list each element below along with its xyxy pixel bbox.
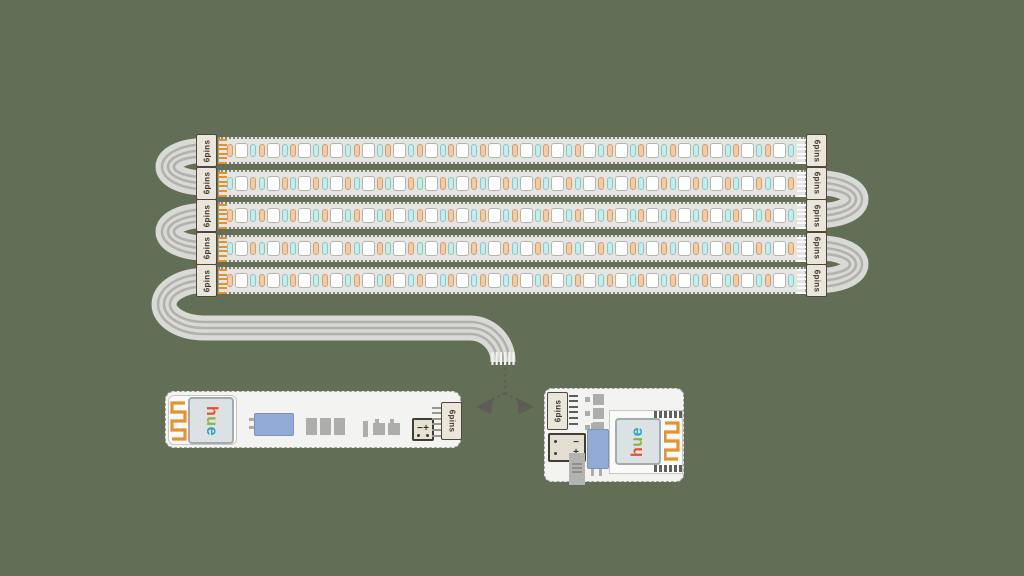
hue-controller-board-compact: 6pins − + hue	[544, 388, 684, 482]
led-white	[615, 273, 628, 288]
connector-pin	[797, 139, 806, 141]
connector-pin	[797, 278, 806, 280]
led-cool	[756, 144, 762, 157]
led-warm	[250, 177, 256, 190]
connector-pin	[218, 185, 227, 187]
connector-pin	[218, 218, 227, 220]
led-cool	[566, 209, 572, 222]
led-cool	[322, 177, 328, 190]
connector-pin	[797, 260, 806, 262]
led-group	[227, 208, 256, 223]
led-cool	[670, 242, 676, 255]
led-white	[235, 241, 248, 256]
led-warm	[259, 209, 265, 222]
led-strip-leds	[227, 269, 794, 292]
led-warm	[512, 209, 518, 222]
led-group	[512, 273, 541, 288]
led-white	[425, 241, 438, 256]
connector-label: 6pins	[202, 140, 211, 162]
led-cool	[448, 177, 454, 190]
led-cool	[756, 209, 762, 222]
led-group	[290, 273, 319, 288]
led-warm	[725, 177, 731, 190]
connector-pin	[797, 176, 806, 178]
connector-pin	[218, 144, 227, 146]
led-cool	[227, 177, 233, 190]
led-warm	[512, 144, 518, 157]
led-white	[583, 241, 596, 256]
led-white	[710, 241, 723, 256]
led-cool	[227, 242, 233, 255]
led-white	[741, 241, 754, 256]
connector-label: 6pins	[812, 172, 821, 194]
led-group	[765, 241, 794, 256]
led-cool	[788, 209, 794, 222]
board-6pins-connector: 6pins	[441, 402, 462, 440]
smd-component	[388, 423, 400, 435]
led-group	[290, 241, 319, 256]
led-white	[330, 143, 343, 158]
smd-component	[585, 397, 590, 402]
led-cool	[575, 242, 581, 255]
led-white	[362, 273, 375, 288]
led-white	[488, 176, 501, 191]
led-group	[227, 143, 256, 158]
connector-pin	[797, 269, 806, 271]
led-cool	[480, 177, 486, 190]
led-warm	[290, 209, 296, 222]
led-group	[259, 143, 288, 158]
connector-label: 6pins	[812, 270, 821, 292]
led-white	[520, 143, 533, 158]
antenna-icon	[169, 401, 187, 441]
led-warm	[702, 274, 708, 287]
led-group	[322, 241, 351, 256]
connector-pin	[797, 250, 806, 252]
led-cool	[408, 144, 414, 157]
led-cool	[250, 274, 256, 287]
led-cool	[607, 177, 613, 190]
led-white	[583, 208, 596, 223]
led-white	[773, 208, 786, 223]
led-white	[235, 176, 248, 191]
led-warm	[575, 209, 581, 222]
led-group	[322, 208, 351, 223]
connector-pin	[797, 246, 806, 248]
led-warm	[471, 177, 477, 190]
led-group	[638, 273, 667, 288]
led-group	[670, 208, 699, 223]
strip-6pins-connector-right-1: 6pins	[806, 134, 827, 167]
connector-pin	[218, 213, 227, 215]
led-warm	[575, 144, 581, 157]
led-cool	[661, 209, 667, 222]
led-group	[290, 143, 319, 158]
led-white	[456, 208, 469, 223]
connector-pin	[797, 162, 806, 164]
arrow-to-right-board	[517, 398, 534, 414]
led-white	[646, 143, 659, 158]
led-group	[765, 143, 794, 158]
led-warm	[693, 177, 699, 190]
connector-pin	[797, 190, 806, 192]
connector-label: 6pins	[202, 205, 211, 227]
led-cool	[765, 177, 771, 190]
led-cool	[480, 242, 486, 255]
led-warm	[503, 242, 509, 255]
led-white	[520, 176, 533, 191]
connector-pin	[218, 283, 227, 285]
led-cool	[313, 144, 319, 157]
led-cool	[693, 209, 699, 222]
connector-pin	[797, 204, 806, 206]
led-strip-row-2	[218, 170, 806, 197]
led-group	[607, 208, 636, 223]
led-white	[615, 208, 628, 223]
led-group	[448, 273, 477, 288]
led-white	[520, 241, 533, 256]
power-terminal: − +	[412, 418, 434, 441]
led-cool	[250, 209, 256, 222]
led-cool	[313, 209, 319, 222]
led-white	[425, 208, 438, 223]
led-white	[615, 176, 628, 191]
led-group	[259, 273, 288, 288]
led-cool	[471, 274, 477, 287]
led-white	[520, 208, 533, 223]
led-strip-leds	[227, 139, 794, 162]
led-cool	[598, 274, 604, 287]
led-cool	[733, 177, 739, 190]
led-group	[575, 208, 604, 223]
led-warm	[345, 177, 351, 190]
led-group	[733, 143, 762, 158]
led-group	[480, 143, 509, 158]
led-white	[393, 241, 406, 256]
led-cool	[630, 144, 636, 157]
led-warm	[417, 209, 423, 222]
led-warm	[638, 144, 644, 157]
led-cool	[282, 209, 288, 222]
led-group	[259, 241, 288, 256]
led-cool	[661, 144, 667, 157]
led-group	[354, 143, 383, 158]
led-group	[322, 143, 351, 158]
led-white	[678, 273, 691, 288]
led-group	[733, 241, 762, 256]
connector-pin	[218, 181, 227, 183]
led-cool	[788, 274, 794, 287]
led-cool	[788, 144, 794, 157]
connector-pin	[797, 255, 806, 257]
connector-pin	[797, 292, 806, 294]
led-cool	[725, 209, 731, 222]
led-white	[646, 241, 659, 256]
led-cool	[535, 144, 541, 157]
led-cool	[345, 144, 351, 157]
led-white	[298, 241, 311, 256]
led-warm	[503, 177, 509, 190]
connector-pin	[218, 204, 227, 206]
led-group	[448, 241, 477, 256]
led-white	[362, 176, 375, 191]
led-cool	[471, 209, 477, 222]
led-group	[385, 241, 414, 256]
led-white	[773, 241, 786, 256]
led-warm	[385, 274, 391, 287]
led-white	[678, 176, 691, 191]
led-white	[583, 273, 596, 288]
led-warm	[322, 144, 328, 157]
led-cool	[607, 242, 613, 255]
led-white	[583, 176, 596, 191]
led-white	[646, 176, 659, 191]
led-white	[425, 143, 438, 158]
connector-pin	[797, 181, 806, 183]
led-warm	[313, 177, 319, 190]
led-cool	[408, 274, 414, 287]
led-strip-row-3	[218, 202, 806, 229]
led-white	[235, 143, 248, 158]
led-white	[267, 176, 280, 191]
connector-pin	[218, 222, 227, 224]
connector-pin	[218, 269, 227, 271]
led-group	[385, 143, 414, 158]
led-strip-row-1	[218, 137, 806, 164]
led-warm	[702, 209, 708, 222]
led-white	[393, 273, 406, 288]
led-white	[741, 176, 754, 191]
led-white	[267, 208, 280, 223]
led-warm	[512, 274, 518, 287]
driver-chip	[254, 413, 294, 436]
connector-pin	[218, 241, 227, 243]
led-white	[741, 273, 754, 288]
led-warm	[313, 242, 319, 255]
led-white	[773, 176, 786, 191]
led-warm	[765, 274, 771, 287]
led-warm	[566, 177, 572, 190]
connector-pin	[218, 139, 227, 141]
led-warm	[661, 177, 667, 190]
led-cool	[638, 177, 644, 190]
led-warm	[408, 242, 414, 255]
led-cool	[543, 242, 549, 255]
led-white	[298, 143, 311, 158]
led-warm	[543, 144, 549, 157]
led-warm	[282, 177, 288, 190]
strip-6pins-connector-left-1: 6pins	[196, 134, 217, 167]
led-group	[765, 176, 794, 191]
led-cool	[503, 144, 509, 157]
led-cool	[282, 144, 288, 157]
connection-choice-arrows	[476, 368, 534, 414]
led-white	[362, 241, 375, 256]
led-warm	[322, 209, 328, 222]
led-warm	[282, 242, 288, 255]
led-group	[543, 143, 572, 158]
connector-pin	[218, 195, 227, 197]
hue-lightstrip-wiring-diagram: 6pins6pins6pins6pins6pins6pins6pins6pins…	[0, 0, 1024, 576]
board-6pins-connector: 6pins	[547, 392, 568, 430]
antenna-icon	[664, 421, 682, 465]
led-group	[448, 176, 477, 191]
led-cool	[385, 242, 391, 255]
connector-pin	[797, 222, 806, 224]
smd-component	[320, 418, 331, 435]
connector-pin	[218, 274, 227, 276]
led-white	[456, 143, 469, 158]
led-cool	[290, 242, 296, 255]
terminal-dot	[554, 452, 557, 455]
led-warm	[448, 209, 454, 222]
strip-6pins-connector-left-2: 6pins	[196, 167, 217, 200]
led-white	[330, 273, 343, 288]
connector-pin	[218, 292, 227, 294]
led-strip-leds	[227, 237, 794, 260]
led-cool	[638, 242, 644, 255]
led-cool	[535, 274, 541, 287]
led-group	[480, 241, 509, 256]
led-strip-row-5	[218, 267, 806, 294]
led-group	[385, 208, 414, 223]
strip-6pins-connector-left-3: 6pins	[196, 199, 217, 232]
led-white	[425, 176, 438, 191]
led-warm	[259, 144, 265, 157]
hue-letter-h: h	[203, 406, 220, 416]
led-warm	[440, 242, 446, 255]
led-cool	[702, 177, 708, 190]
chip-pin	[599, 423, 602, 429]
led-group	[702, 208, 731, 223]
connector-pin	[797, 237, 806, 239]
led-white	[615, 241, 628, 256]
led-cool	[377, 209, 383, 222]
led-white	[551, 208, 564, 223]
led-cool	[440, 209, 446, 222]
led-group	[290, 176, 319, 191]
led-cool	[630, 274, 636, 287]
led-group	[575, 143, 604, 158]
led-warm	[670, 144, 676, 157]
led-warm	[480, 274, 486, 287]
led-white	[615, 143, 628, 158]
hue-letter-e: e	[203, 426, 220, 435]
hue-chip-module: hue	[615, 418, 661, 465]
led-group	[670, 176, 699, 191]
connector-pin	[797, 227, 806, 229]
led-white	[741, 143, 754, 158]
led-warm	[345, 242, 351, 255]
led-warm	[543, 209, 549, 222]
terminal-dot	[554, 440, 557, 443]
led-cool	[566, 274, 572, 287]
led-white	[551, 143, 564, 158]
connector-pin	[218, 255, 227, 257]
chip-pin	[249, 426, 254, 429]
led-group	[512, 241, 541, 256]
led-warm	[598, 177, 604, 190]
led-cool	[354, 177, 360, 190]
led-group	[354, 176, 383, 191]
led-cool	[733, 242, 739, 255]
led-group	[702, 241, 731, 256]
led-group	[385, 273, 414, 288]
led-warm	[385, 144, 391, 157]
led-white	[646, 208, 659, 223]
led-white	[393, 208, 406, 223]
led-group	[259, 176, 288, 191]
led-cool	[354, 242, 360, 255]
connector-pin	[797, 157, 806, 159]
led-warm	[535, 177, 541, 190]
led-cool	[693, 144, 699, 157]
led-warm	[227, 209, 233, 222]
led-group	[543, 208, 572, 223]
led-white	[267, 241, 280, 256]
smd-component	[593, 408, 604, 419]
led-warm	[702, 144, 708, 157]
led-warm	[354, 274, 360, 287]
led-white	[710, 143, 723, 158]
led-white	[456, 273, 469, 288]
led-group	[227, 273, 256, 288]
led-white	[393, 143, 406, 158]
led-group	[322, 273, 351, 288]
connector-pin	[218, 172, 227, 174]
connector-pin	[797, 213, 806, 215]
led-warm	[756, 242, 762, 255]
led-group	[607, 273, 636, 288]
led-warm	[607, 144, 613, 157]
led-group	[575, 176, 604, 191]
led-group	[733, 208, 762, 223]
led-group	[670, 241, 699, 256]
led-group	[227, 241, 256, 256]
led-group	[417, 241, 446, 256]
connector-pin	[797, 218, 806, 220]
connector-pin	[797, 144, 806, 146]
led-white	[488, 143, 501, 158]
led-cool	[630, 209, 636, 222]
led-cool	[693, 274, 699, 287]
led-group	[543, 241, 572, 256]
led-group	[575, 273, 604, 288]
led-cool	[725, 144, 731, 157]
led-cool	[702, 242, 708, 255]
led-white	[393, 176, 406, 191]
led-warm	[765, 209, 771, 222]
led-white	[267, 143, 280, 158]
led-cool	[377, 274, 383, 287]
led-group	[354, 273, 383, 288]
connector-pin	[218, 153, 227, 155]
terminal-plus-label: +	[423, 423, 429, 434]
led-warm	[290, 144, 296, 157]
led-warm	[480, 144, 486, 157]
led-white	[456, 241, 469, 256]
led-cool	[575, 177, 581, 190]
strip-6pins-connector-right-4: 6pins	[806, 232, 827, 265]
led-warm	[408, 177, 414, 190]
led-white	[773, 273, 786, 288]
smd-component	[363, 421, 368, 437]
led-warm	[607, 209, 613, 222]
led-group	[417, 176, 446, 191]
led-group	[638, 241, 667, 256]
led-cool	[259, 177, 265, 190]
led-cool	[512, 177, 518, 190]
